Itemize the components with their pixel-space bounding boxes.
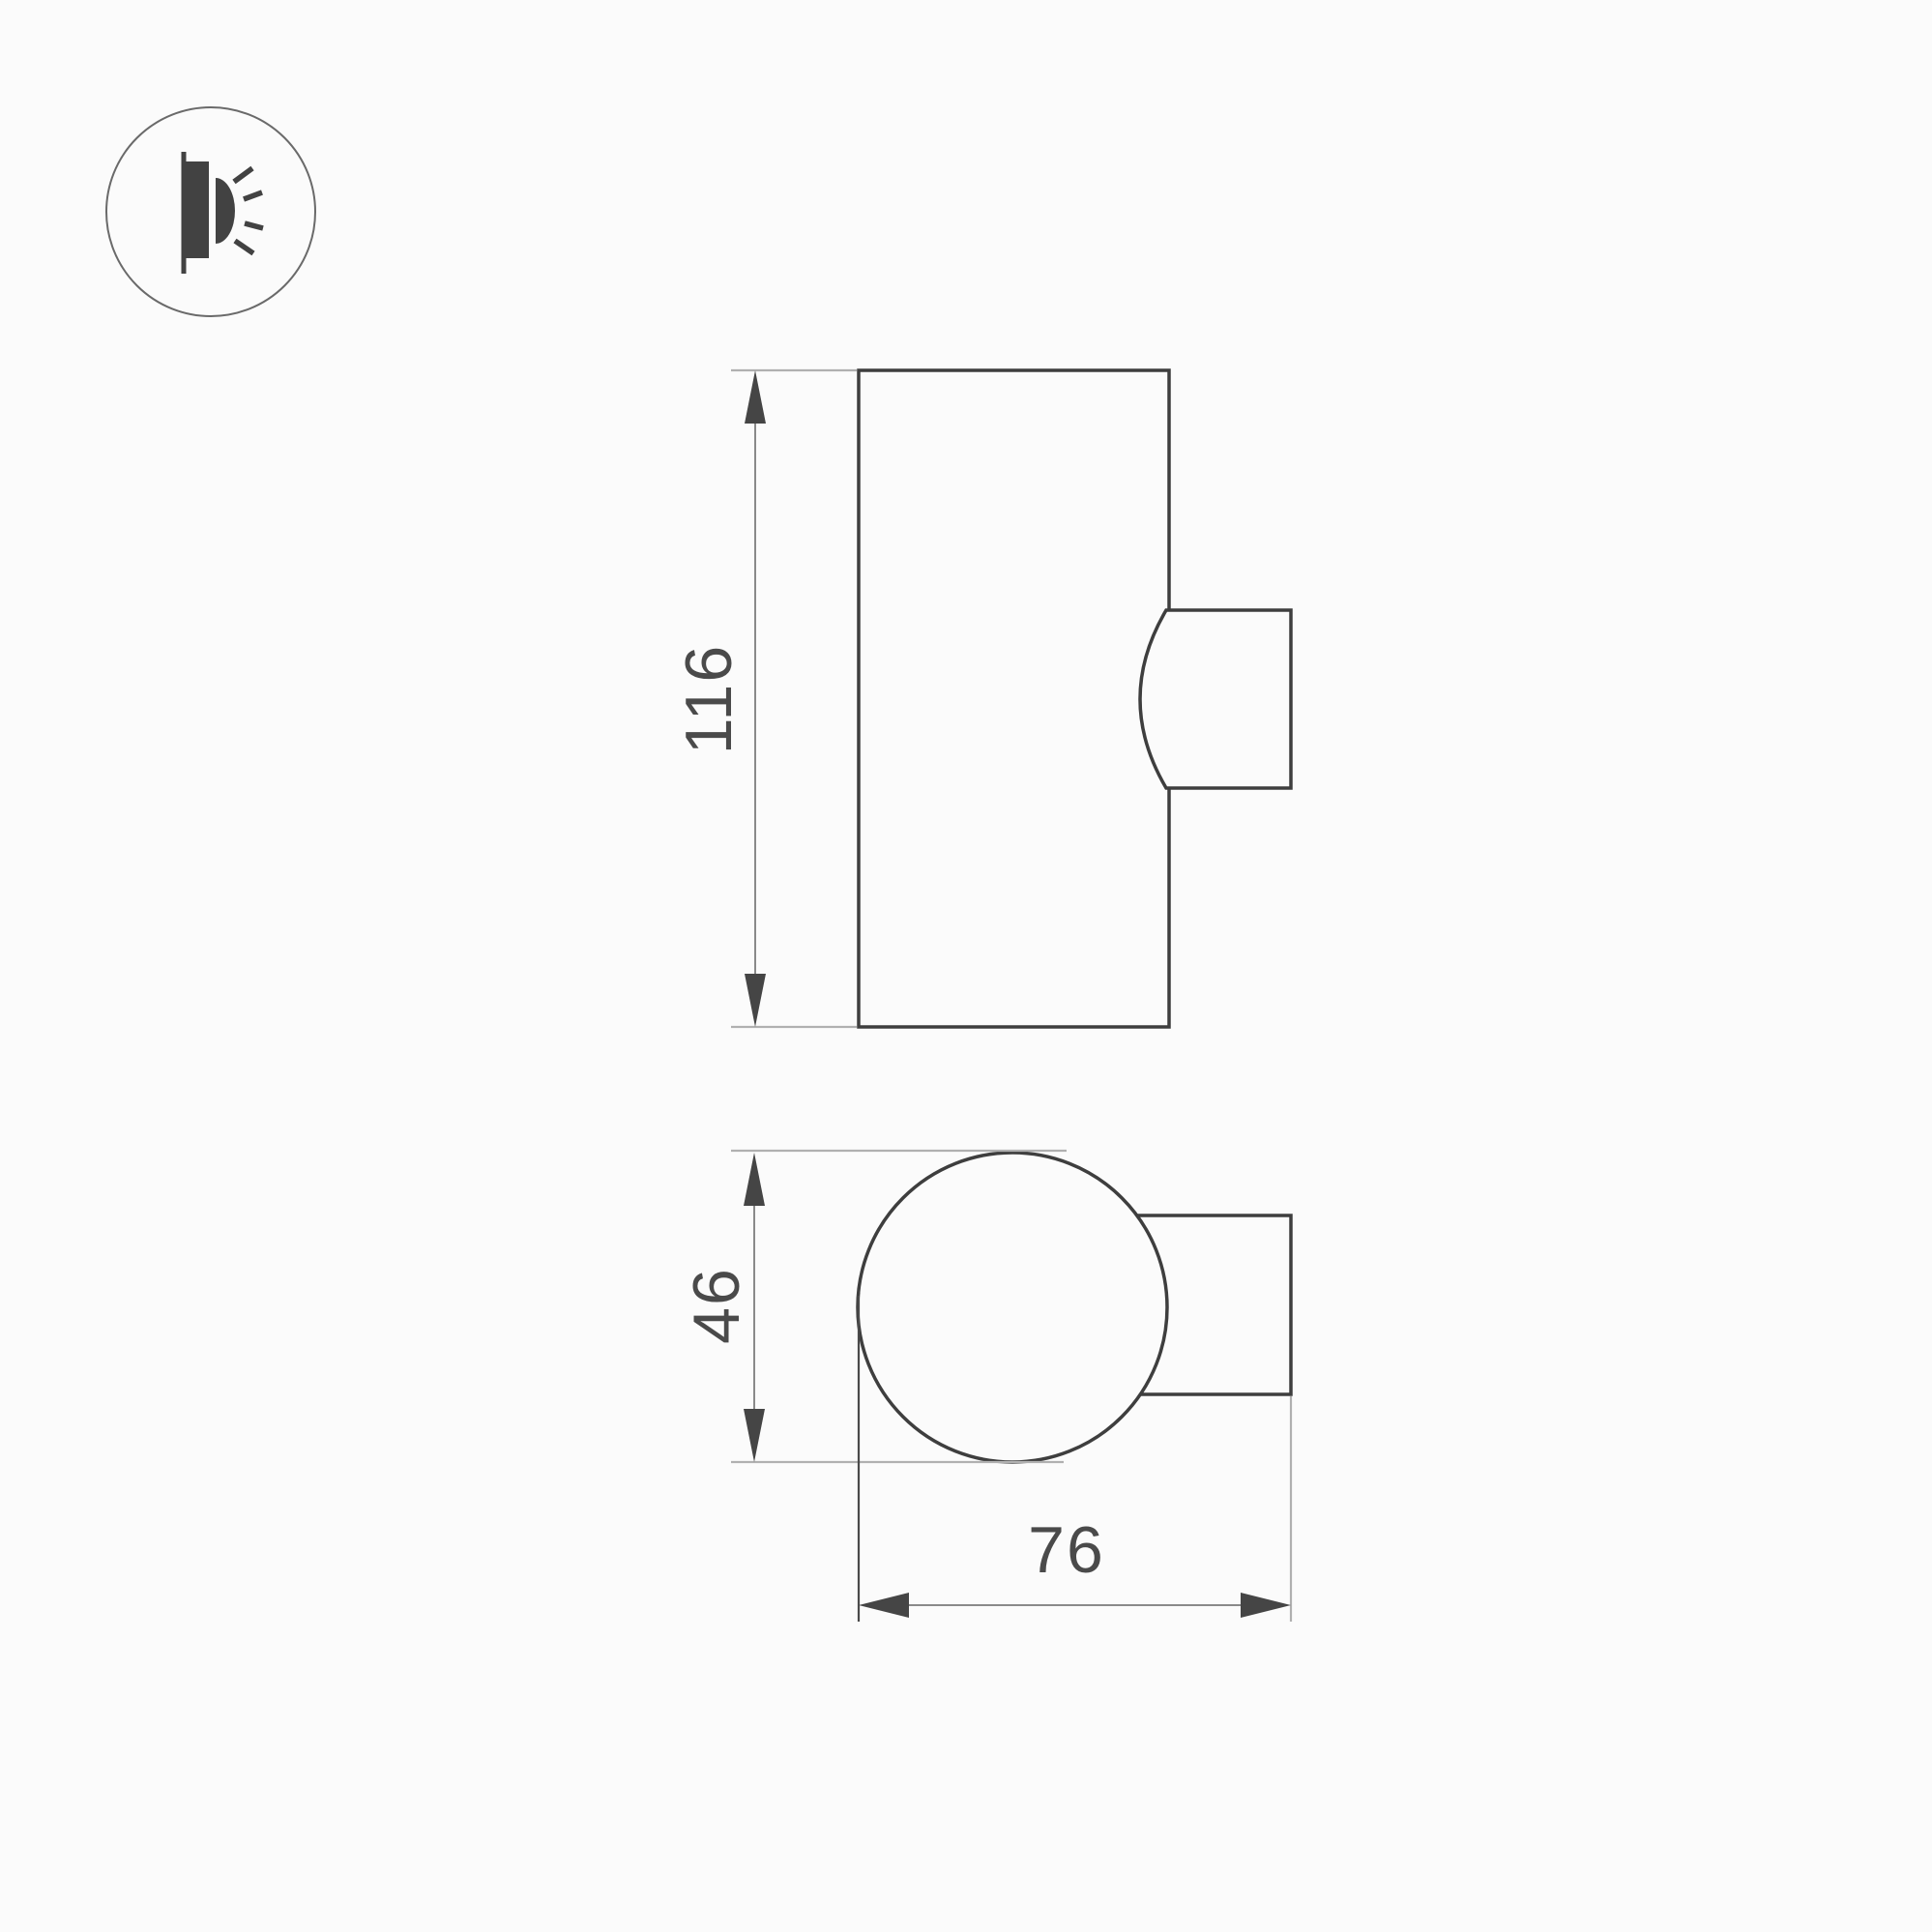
icon-lamp-body (186, 161, 209, 258)
arrowhead-down (745, 974, 766, 1027)
icon-wall-line (182, 152, 187, 274)
dimension-label-depth: 76 (1028, 1513, 1105, 1587)
icon-light-ray (245, 223, 263, 228)
wall-light-icon (182, 152, 264, 274)
arrowhead-up (744, 1153, 765, 1206)
side-view-mount (1140, 610, 1291, 788)
side-view (859, 370, 1291, 1027)
arrowhead-down (744, 1409, 765, 1462)
icon-circle-outline (106, 107, 315, 316)
top-view-body-circle (858, 1153, 1167, 1462)
icon-light-ray (244, 192, 262, 199)
arrowhead-up (745, 370, 766, 424)
arrowhead-left (859, 1593, 909, 1618)
arrowhead-right (1241, 1593, 1291, 1618)
icon-light-ray (234, 168, 252, 182)
dimension-drawing: 116 46 76 (0, 0, 1932, 1932)
dimension-label-diameter: 46 (680, 1267, 753, 1344)
side-view-body (859, 370, 1169, 1027)
wall-light-badge (106, 107, 315, 316)
top-view (858, 1153, 1291, 1462)
icon-light-ray (235, 241, 253, 253)
icon-lamp-dome (216, 178, 235, 244)
dimension-height: 116 (672, 370, 857, 1027)
dimension-label-height: 116 (672, 644, 746, 754)
